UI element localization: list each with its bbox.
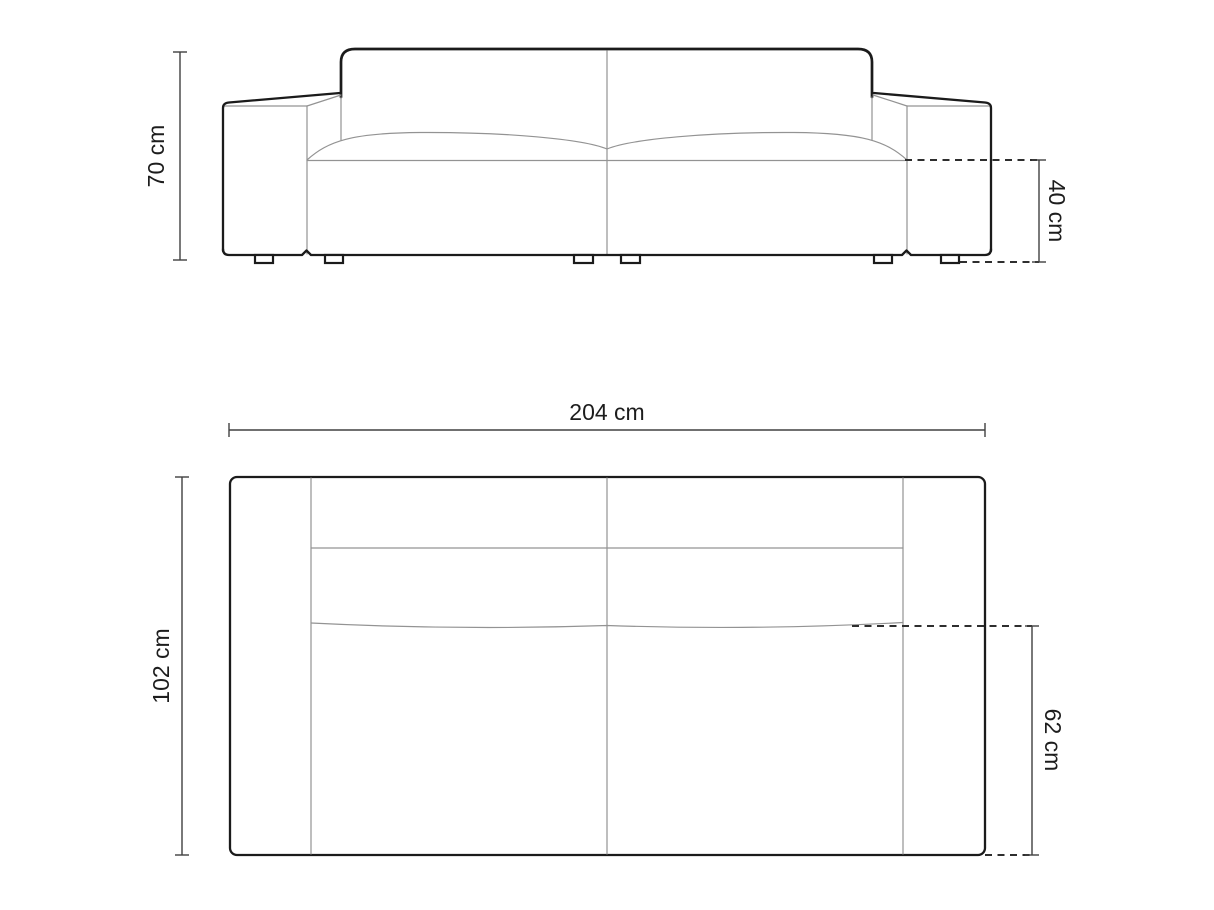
- front-foot: [874, 255, 892, 263]
- dimension-width: 204 cm: [229, 399, 985, 437]
- front-foot: [574, 255, 593, 263]
- front-right-seat-cushion-curve: [607, 132, 907, 160]
- dimension-depth-label: 102 cm: [148, 628, 174, 703]
- dimension-depth: 102 cm: [148, 477, 189, 855]
- front-left-armrest-depth-edge: [307, 95, 341, 106]
- dimension-height-label: 70 cm: [143, 125, 169, 188]
- front-left-seat-cushion-curve: [307, 132, 607, 160]
- front-view: [223, 49, 991, 263]
- front-right-armrest-outline: [874, 93, 991, 251]
- dimension-seat-depth: 62 cm: [852, 626, 1066, 855]
- front-foot: [255, 255, 273, 263]
- dimension-seat-height-label: 40 cm: [1044, 180, 1070, 243]
- front-foot: [621, 255, 640, 263]
- dimension-seat-depth-label: 62 cm: [1040, 709, 1066, 772]
- dimension-height: 70 cm: [143, 52, 187, 260]
- front-left-armrest-outline: [223, 93, 340, 251]
- front-foot: [941, 255, 959, 263]
- dimension-drawing-canvas: 70 cm 40 cm 204 cm 102 cm: [0, 0, 1214, 910]
- front-foot: [325, 255, 343, 263]
- sofa-dimension-diagram: 70 cm 40 cm 204 cm 102 cm: [0, 0, 1214, 910]
- front-right-armrest-depth-edge: [873, 95, 907, 106]
- dimension-width-label: 204 cm: [569, 399, 644, 425]
- dimension-seat-height: 40 cm: [905, 160, 1070, 262]
- top-view: [230, 477, 985, 855]
